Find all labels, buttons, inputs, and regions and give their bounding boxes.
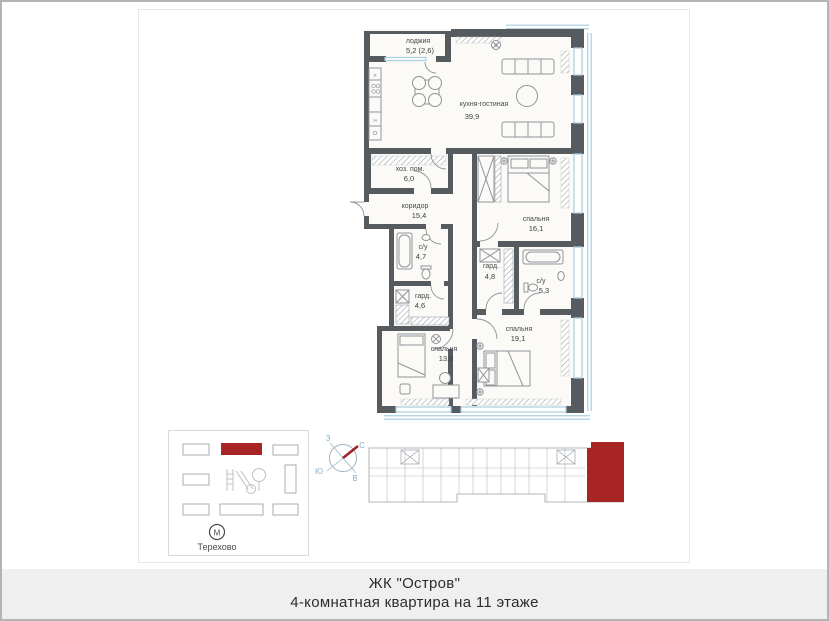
dishwasher-icon: пм bbox=[373, 119, 378, 123]
room-area-bedroom-3: 19,1 bbox=[511, 334, 526, 343]
highlighted-building bbox=[221, 443, 262, 455]
room-area-bedroom-1: 16,1 bbox=[529, 224, 544, 233]
room-area-wardrobe-1: 4,8 bbox=[485, 272, 495, 281]
floorplan-card: ✳ пм bbox=[138, 9, 690, 563]
room-label-bedroom-3: спальня bbox=[506, 326, 533, 333]
compass-west: З bbox=[326, 434, 331, 443]
room-area-wardrobe-2: 4,6 bbox=[415, 301, 425, 310]
room-label-bedroom-1: спальня bbox=[523, 216, 550, 223]
room-label-wardrobe-1: гард. bbox=[483, 263, 499, 270]
playground-icon bbox=[227, 469, 266, 494]
floor-key-plan bbox=[367, 436, 631, 516]
compass-needle bbox=[343, 446, 358, 458]
room-label-wardrobe-2: гард. bbox=[415, 293, 431, 300]
room-label-loggia: лоджия bbox=[406, 38, 431, 45]
room-area-corridor: 15,4 bbox=[412, 211, 427, 220]
project-title: ЖК "Остров" bbox=[0, 569, 829, 592]
room-label-kitchen-living: кухня-гостиная bbox=[460, 101, 509, 108]
room-label-corridor: коридор bbox=[402, 203, 429, 210]
room-area-utility: 6,0 bbox=[404, 174, 414, 183]
room-label-utility: хоз. пом. bbox=[396, 166, 425, 173]
ceiling-light-icon bbox=[492, 41, 501, 50]
room-area-kitchen-living: 39,9 bbox=[465, 112, 480, 121]
metro-icon: М bbox=[210, 525, 225, 540]
apartment-title: 4-комнатная квартира на 11 этаже bbox=[0, 592, 829, 611]
room-label-bathroom-2: с/у bbox=[537, 278, 546, 285]
caption: ЖК "Остров" 4-комнатная квартира на 11 э… bbox=[0, 569, 829, 621]
svg-text:М: М bbox=[214, 529, 221, 538]
highlighted-apartment bbox=[587, 442, 624, 502]
site-plan: М Терехово bbox=[168, 430, 309, 556]
compass-east: В bbox=[352, 474, 357, 483]
room-area-bathroom-2: 5,3 bbox=[539, 286, 549, 295]
floor-plan: ✳ пм bbox=[336, 23, 596, 423]
compass-north: С bbox=[359, 441, 365, 450]
room-label-bedroom-2: спальня bbox=[431, 346, 458, 353]
fridge-icon: ✳ bbox=[373, 73, 377, 79]
room-area-bathroom-1: 4,7 bbox=[416, 252, 426, 261]
room-area-bedroom-2: 13,6 bbox=[439, 354, 454, 363]
compass-south: Ю bbox=[315, 467, 323, 476]
room-label-bathroom-1: с/у bbox=[419, 244, 428, 251]
room-area-loggia: 5,2 (2,6) bbox=[406, 46, 434, 55]
metro-station-label: Терехово bbox=[198, 542, 237, 552]
ceiling-light-icon bbox=[432, 335, 441, 344]
